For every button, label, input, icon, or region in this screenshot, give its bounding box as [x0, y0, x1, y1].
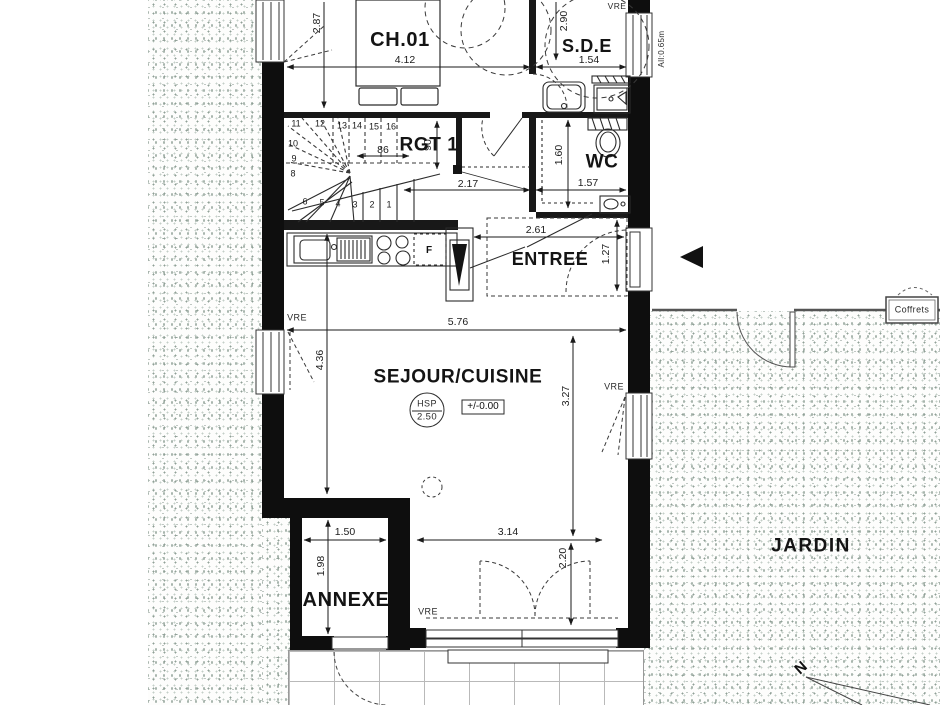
dim-sde-width: 1.54: [579, 55, 599, 66]
bed: [356, 0, 440, 105]
room-label-sejour: SEJOUR/CUISINE: [374, 368, 543, 387]
annexe-door: [332, 637, 388, 705]
stair-step-number: 15: [369, 123, 379, 132]
stair-step-number: 2: [369, 201, 374, 210]
stair-step-number: 1: [386, 201, 391, 210]
dim-hall-width: 2.17: [458, 179, 478, 190]
vre-label-west: VRE: [287, 314, 307, 323]
dim-wc-height: 1.60: [554, 145, 565, 165]
bathroom-fixtures: [543, 76, 630, 113]
interior-walls: [284, 0, 628, 230]
kitchen-fixtures: [287, 228, 473, 301]
dim-annexe-height: 1.98: [316, 556, 327, 576]
stair-step-number: 11: [291, 120, 300, 129]
room-label-jardin: JARDIN: [771, 537, 851, 556]
dim-stair-width: 86: [377, 145, 389, 156]
stair-step-number: 8: [290, 170, 295, 179]
fridge-label: F: [426, 246, 432, 256]
plan-linework: [0, 0, 940, 705]
stair-step-number: 5: [319, 199, 324, 208]
bay-window: [426, 630, 618, 663]
stair-step-number: 12: [315, 120, 325, 129]
hsp-label: HSP: [417, 400, 437, 409]
entrance-arrow-icon: [680, 246, 703, 268]
coffrets-label: Coffrets: [895, 306, 930, 315]
stair-step-number: 6: [302, 198, 307, 207]
hsp-value: 2.50: [417, 412, 437, 422]
stair-step-number: 14: [352, 122, 362, 131]
front-door: [626, 228, 652, 291]
room-label-entree: ENTREE: [512, 250, 589, 268]
dim-wc-width: 1.57: [578, 178, 598, 189]
room-label-annexe: ANNEXE: [303, 590, 390, 610]
dim-sejour-right-height: 3.27: [561, 386, 572, 406]
dim-annexe-width: 1.50: [335, 527, 355, 538]
stair-step-number: 3: [352, 201, 357, 210]
dim-entree-depth: 1.27: [601, 244, 612, 264]
room-label-sde: S.D.E: [562, 37, 612, 55]
stair-step-number: 4: [335, 200, 340, 209]
vre-label-bay: VRE: [418, 608, 438, 617]
stair-step-number: 9: [291, 155, 296, 164]
dim-ch01-width: 4.12: [395, 55, 415, 66]
floor-plan: CH.01 S.D.E RGT 1 WC ENTREE SEJOUR/CUISI…: [0, 0, 940, 705]
allege-label: All:0.65m: [658, 31, 666, 68]
stair-step-number: 10: [288, 140, 298, 149]
room-label-wc: WC: [586, 153, 619, 172]
dim-entree-width: 2.61: [526, 225, 546, 236]
stair-step-number: 16: [386, 123, 396, 132]
dim-bay-depth: 2.20: [558, 548, 569, 568]
dim-ch01-height: 2.87: [312, 13, 323, 33]
level-label: +/-0.00: [467, 402, 498, 412]
dim-bay-width: 3.14: [498, 527, 518, 538]
dim-sejour-left-height: 4.36: [315, 350, 326, 370]
gate: [737, 312, 795, 367]
dim-stair-depth: 90: [423, 139, 434, 151]
room-label-ch01: CH.01: [370, 30, 430, 50]
north-arrow-lines: [806, 677, 930, 705]
vre-label-east: VRE: [604, 383, 624, 392]
dim-sde-height: 2.90: [559, 11, 570, 31]
vre-label-sde-top: VRE: [608, 2, 627, 11]
stair-step-number: 13: [337, 122, 347, 131]
dim-sejour-width: 5.76: [448, 317, 468, 328]
